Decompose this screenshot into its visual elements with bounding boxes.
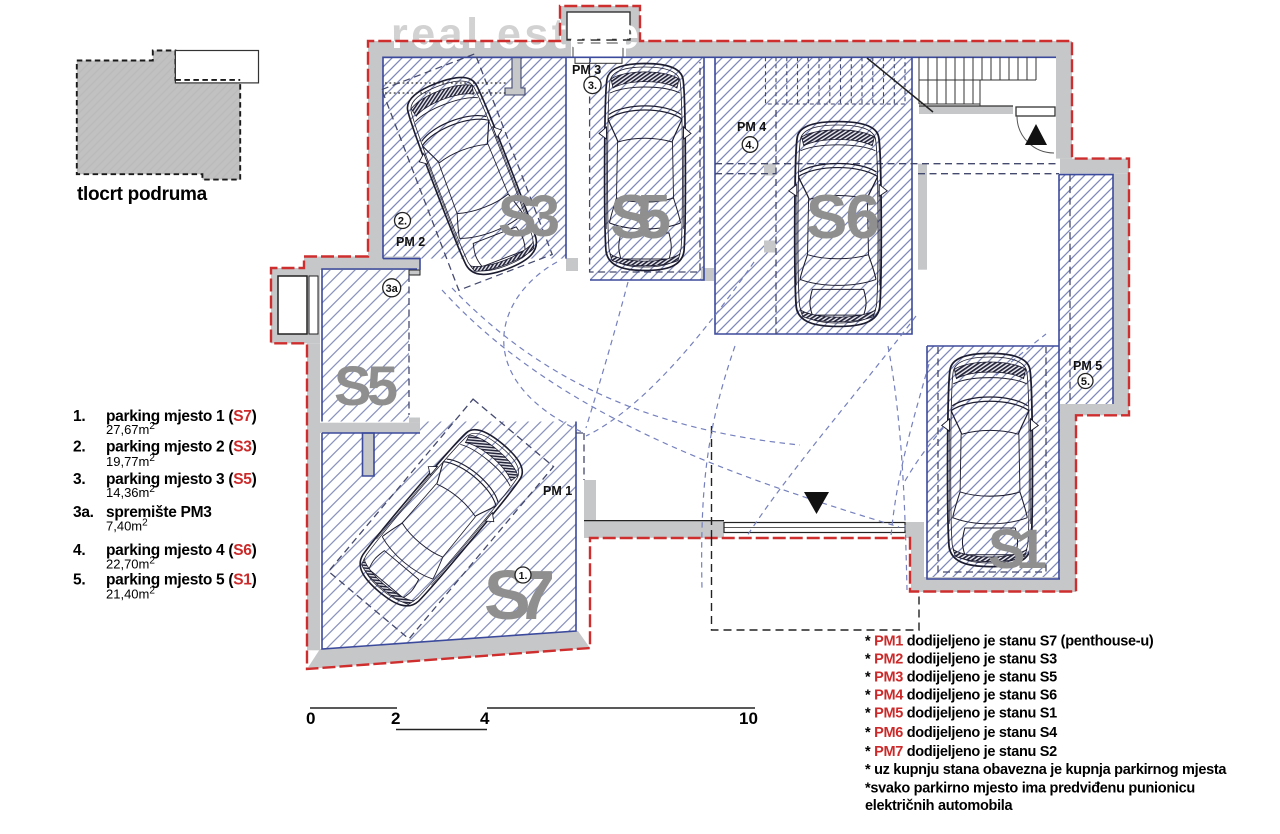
svg-text:tlocrt podruma: tlocrt podruma: [77, 184, 208, 205]
svg-text:električnih automobila: električnih automobila: [865, 798, 1014, 814]
svg-text:S5: S5: [334, 354, 398, 417]
svg-text:4: 4: [480, 709, 490, 728]
svg-text:0: 0: [306, 709, 315, 728]
svg-text:5.: 5.: [1081, 376, 1090, 388]
svg-text:1.: 1.: [519, 570, 528, 582]
svg-text:* PM4 dodijeljeno je stanu S6: * PM4 dodijeljeno je stanu S6: [865, 688, 1057, 704]
svg-text:27,67m2: 27,67m2: [106, 421, 155, 437]
svg-text:* PM1 dodijeljeno je stanu S7: * PM1 dodijeljeno je stanu S7 (penthouse…: [865, 634, 1154, 650]
svg-text:* PM5 dodijeljeno je stanu S1: * PM5 dodijeljeno je stanu S1: [865, 706, 1057, 722]
svg-text:S5: S5: [610, 183, 671, 252]
svg-text:3a: 3a: [386, 283, 399, 295]
svg-text:S3: S3: [498, 184, 560, 249]
svg-text:PM 4: PM 4: [737, 120, 766, 134]
svg-text:10: 10: [739, 709, 758, 728]
svg-text:2: 2: [391, 709, 400, 728]
svg-text:2.: 2.: [73, 439, 85, 456]
svg-text:*svako parkirno mjesto ima pre: *svako parkirno mjesto ima predviđenu pu…: [865, 780, 1195, 796]
svg-text:PM 5: PM 5: [1073, 359, 1102, 373]
svg-text:1.: 1.: [73, 408, 85, 425]
svg-text:PM 2: PM 2: [396, 235, 425, 249]
svg-text:* PM3 dodijeljeno je stanu S5: * PM3 dodijeljeno je stanu S5: [865, 670, 1057, 686]
svg-text:3a.: 3a.: [73, 504, 94, 521]
svg-text:* PM6 dodijeljeno je stanu S4: * PM6 dodijeljeno je stanu S4: [865, 725, 1057, 741]
svg-text:* PM7 dodijeljeno je stanu S2: * PM7 dodijeljeno je stanu S2: [865, 744, 1057, 760]
svg-text:S6: S6: [806, 183, 880, 252]
svg-text:PM 1: PM 1: [543, 484, 572, 498]
svg-text:19,77m2: 19,77m2: [106, 453, 155, 469]
svg-text:PM 3: PM 3: [572, 63, 601, 77]
svg-text:3.: 3.: [73, 471, 85, 488]
svg-text:22,70m2: 22,70m2: [106, 555, 155, 571]
svg-text:14,36m2: 14,36m2: [106, 484, 155, 500]
svg-text:7,40m2: 7,40m2: [106, 518, 148, 534]
svg-text:3.: 3.: [588, 80, 597, 92]
svg-text:S1: S1: [988, 517, 1047, 580]
svg-text:* uz kupnju stana obavezna je: * uz kupnju stana obavezna je kupnja par…: [865, 762, 1227, 778]
svg-text:21,40m2: 21,40m2: [106, 585, 155, 601]
svg-text:* PM2 dodijeljeno je stanu S3: * PM2 dodijeljeno je stanu S3: [865, 652, 1057, 668]
svg-text:2.: 2.: [398, 216, 407, 228]
svg-text:5.: 5.: [73, 572, 85, 589]
svg-text:4.: 4.: [745, 140, 754, 152]
svg-text:4.: 4.: [73, 542, 85, 559]
